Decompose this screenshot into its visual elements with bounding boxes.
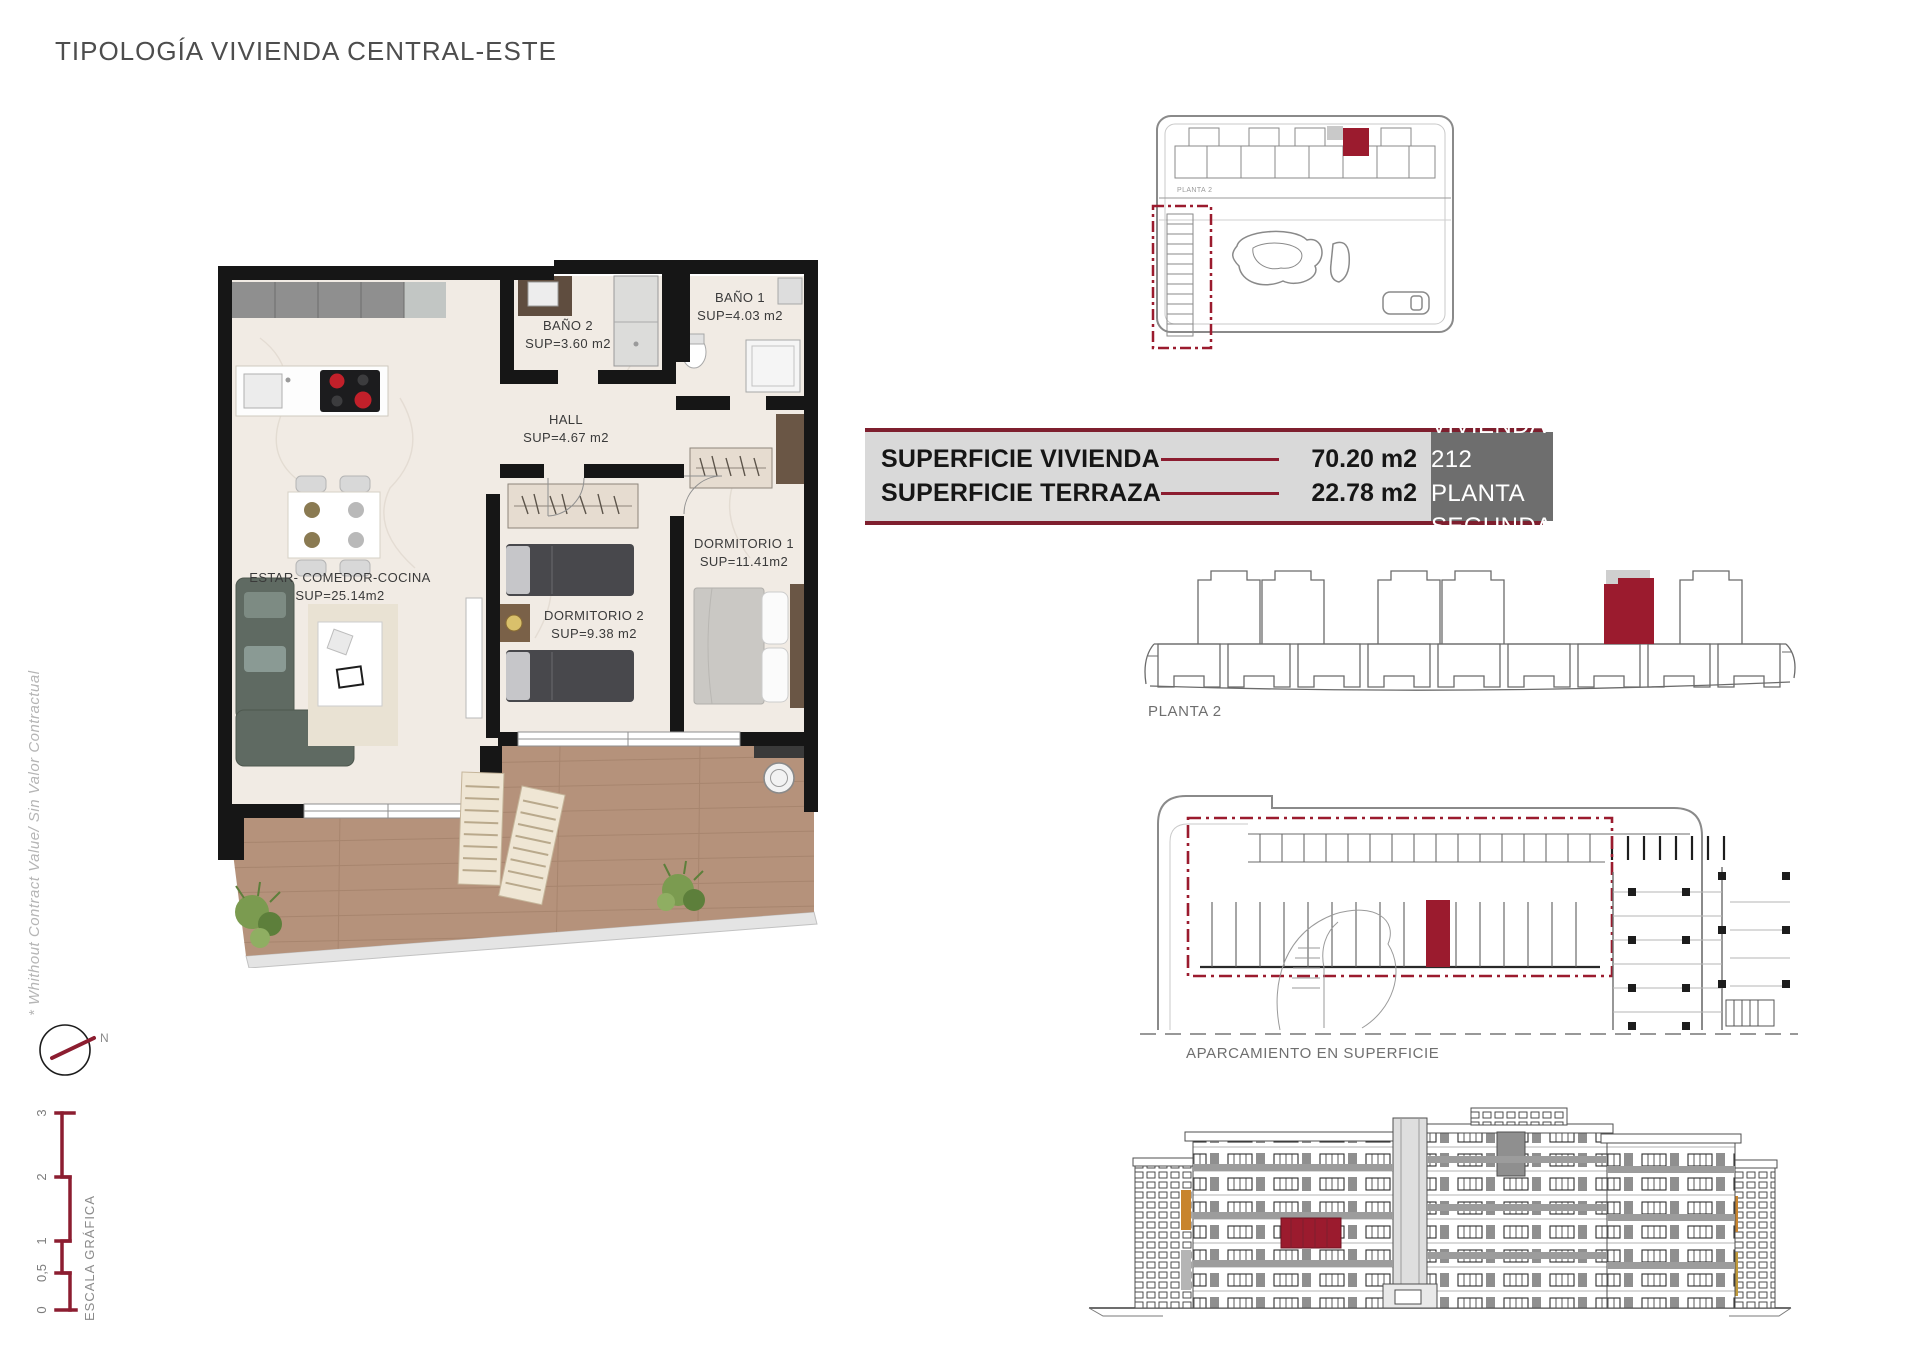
room-area: SUP=9.38 m2 <box>551 626 637 641</box>
dorm2-nightstand <box>498 604 530 642</box>
room-area: SUP=3.60 m2 <box>525 336 611 351</box>
unit-floor: PLANTA SEGUNDA <box>1431 477 1552 544</box>
kitchen-counter <box>236 366 388 416</box>
parking-label: APARCAMIENTO EN SUPERFICIE <box>1186 1045 1439 1062</box>
elevation-unit-highlight <box>1281 1218 1341 1248</box>
page-title: TIPOLOGÍA VIVIENDA CENTRAL-ESTE <box>55 36 557 67</box>
side-note: * Whithout Contract Value/ Sin Valor Con… <box>26 468 43 1016</box>
elevation-blocks <box>1185 1108 1741 1308</box>
floor-key-unit-highlight <box>1604 578 1654 644</box>
rug-and-coffee-table <box>308 604 398 746</box>
parking-dashed-zone <box>1188 818 1612 976</box>
floor-plan: BAÑO 2 SUP=3.60 m2 BAÑO 1 SUP=4.03 m2 HA… <box>200 248 840 968</box>
leader-line <box>1161 492 1279 495</box>
summary-row-label: SUPERFICIE VIVIENDA <box>881 445 1160 474</box>
summary-rows: SUPERFICIE VIVIENDA 70.20 m2 SUPERFICIE … <box>865 432 1431 521</box>
summary-row-value: 22.78 m2 <box>1279 479 1417 508</box>
scale-bar: 0 0,5 1 2 3 ESCALA GRÁFICA <box>18 1098 118 1348</box>
site-parking-ladder <box>1167 214 1193 336</box>
room-label: ESTAR- COMEDOR-COCINA <box>249 570 431 585</box>
floor-key-label: PLANTA 2 <box>1148 703 1222 720</box>
summary-row: SUPERFICIE TERRAZA 22.78 m2 <box>881 479 1417 508</box>
site-unit-highlight <box>1343 128 1369 156</box>
summary-row-value: 70.20 m2 <box>1279 445 1417 474</box>
scale-tick: 2 <box>34 1173 49 1180</box>
floor-key: PLANTA 2 <box>1140 556 1800 726</box>
closet <box>776 414 804 484</box>
compass-needle <box>52 1038 94 1058</box>
site-pool <box>1233 231 1350 284</box>
summary-row-label: SUPERFICIE TERRAZA <box>881 479 1161 508</box>
brochure-page: { "title": "TIPOLOGÍA VIVIENDA CENTRAL-E… <box>0 0 1920 1356</box>
scale-bar-line <box>56 1113 76 1310</box>
room-label: BAÑO 2 <box>543 318 593 333</box>
sink <box>244 374 282 408</box>
scale-tick: 0 <box>34 1306 49 1313</box>
leader <box>1160 458 1279 461</box>
room-area: SUP=4.67 m2 <box>523 430 609 445</box>
sun-lounger <box>458 772 504 885</box>
leader <box>1161 492 1279 495</box>
scale-tick: 3 <box>34 1109 49 1116</box>
site-plan: PLANTA 2 <box>1145 108 1465 358</box>
site-plan-label: PLANTA 2 <box>1177 187 1212 194</box>
hob <box>320 370 380 412</box>
parking-landscape <box>1277 910 1396 1030</box>
unit-badge: VIVIENDA 212 PLANTA SEGUNDA <box>1431 432 1552 521</box>
site-unit-gray <box>1327 126 1343 140</box>
summary-row: SUPERFICIE VIVIENDA 70.20 m2 <box>881 445 1417 474</box>
scale-tick: 1 <box>34 1237 49 1244</box>
parking-stall-highlight <box>1426 900 1450 967</box>
room-label: DORMITORIO 1 <box>694 536 794 551</box>
room-area: SUP=4.03 m2 <box>697 308 783 323</box>
room-area: SUP=25.14m2 <box>295 588 384 603</box>
room-label: HALL <box>549 412 583 427</box>
parking-plan: APARCAMIENTO EN SUPERFICIE <box>1130 762 1805 1067</box>
kitchen-cabinets <box>232 282 446 318</box>
parking-top-row <box>1248 834 1690 862</box>
scale-bar-label: ESCALA GRÁFICA <box>82 1195 97 1321</box>
site-dashed-zone <box>1153 206 1211 348</box>
north-label: N <box>100 1031 109 1045</box>
parking-top-row-right <box>1612 836 1724 860</box>
dorm1-wardrobe <box>690 448 772 488</box>
building-elevation <box>1085 1100 1795 1345</box>
tv-bench <box>466 598 482 718</box>
site-building <box>1175 128 1435 178</box>
scale-tick: 0,5 <box>34 1264 49 1282</box>
summary-table: SUPERFICIE VIVIENDA 70.20 m2 SUPERFICIE … <box>865 428 1543 525</box>
leader-line <box>1161 458 1279 461</box>
dorm2-wardrobe <box>508 484 638 528</box>
washing-machine <box>764 763 794 793</box>
site-car <box>1383 292 1429 314</box>
room-label: DORMITORIO 2 <box>544 608 644 623</box>
parking-middle-row <box>1200 900 1600 967</box>
compass-icon: N <box>30 1012 120 1084</box>
room-area: SUP=11.41m2 <box>700 554 788 569</box>
room-label: BAÑO 1 <box>715 290 765 305</box>
unit-number: VIVIENDA 212 <box>1431 409 1552 476</box>
